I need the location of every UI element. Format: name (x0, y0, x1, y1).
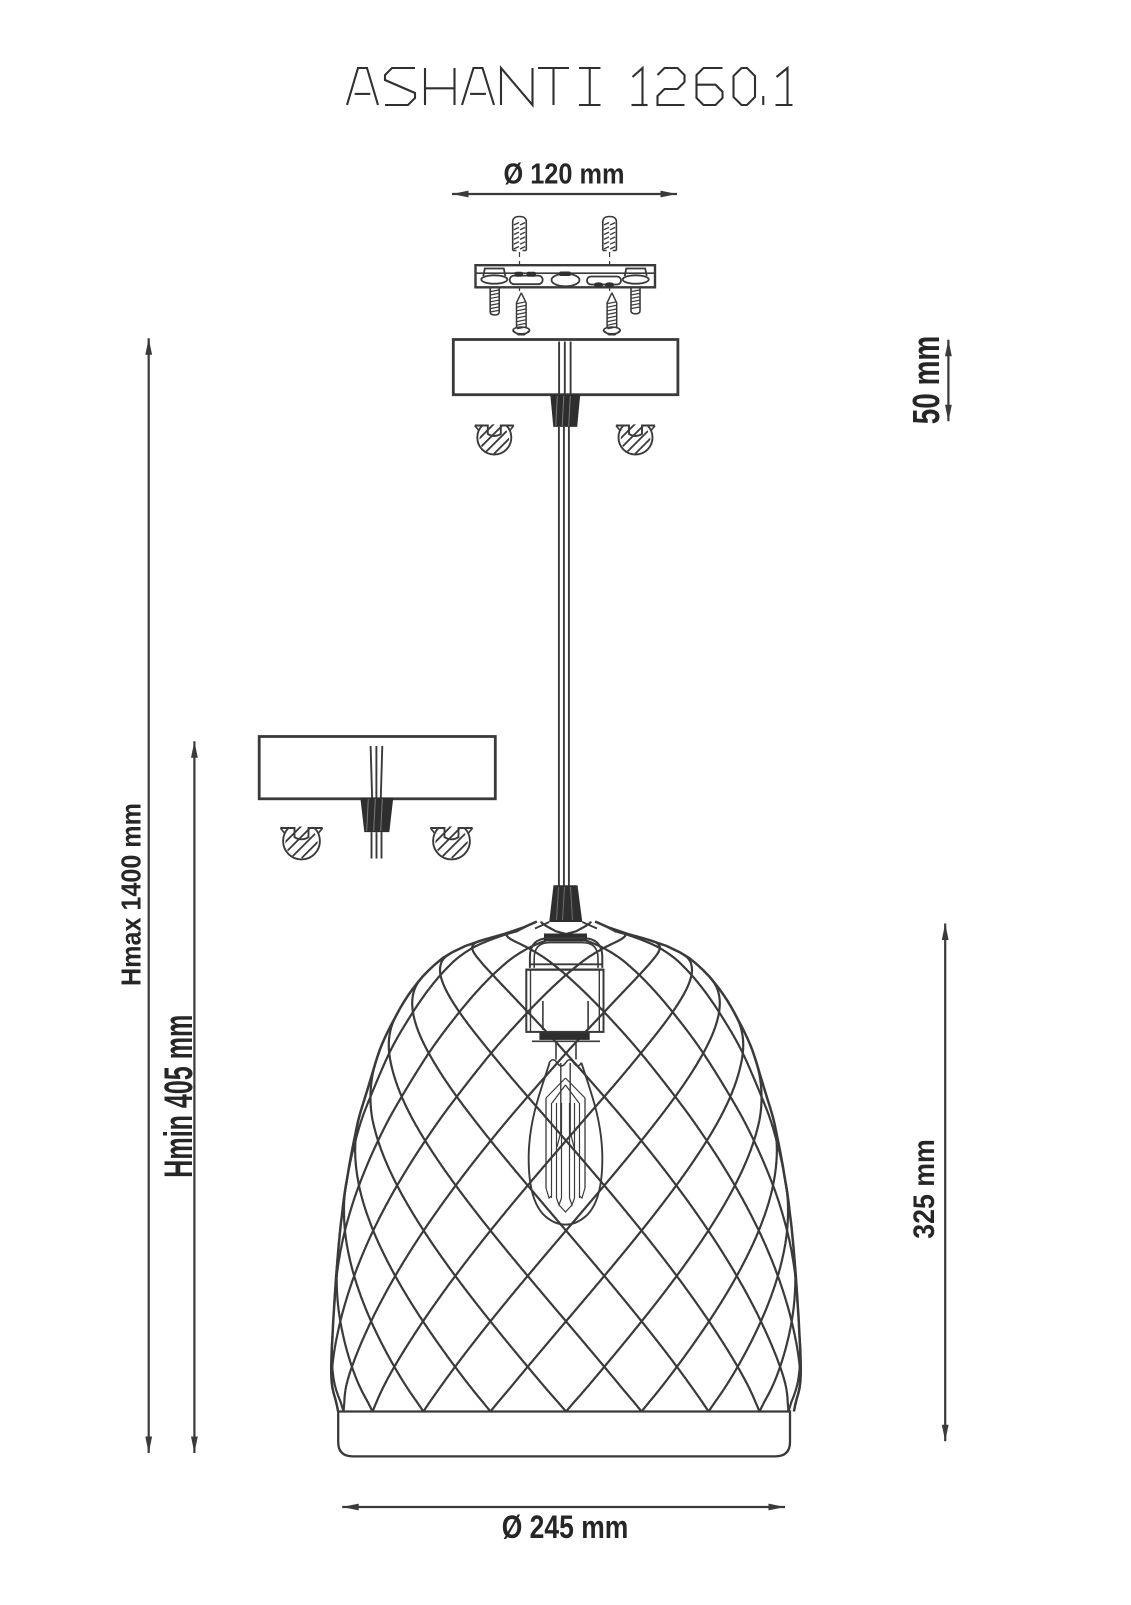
svg-text:Hmax 1400 mm: Hmax 1400 mm (116, 803, 147, 986)
svg-text:Ø 245 mm: Ø 245 mm (502, 1509, 629, 1545)
svg-text:325 mm: 325 mm (908, 1139, 941, 1239)
svg-text:50 mm: 50 mm (906, 336, 948, 425)
svg-text:Ø 120 mm: Ø 120 mm (504, 159, 625, 191)
